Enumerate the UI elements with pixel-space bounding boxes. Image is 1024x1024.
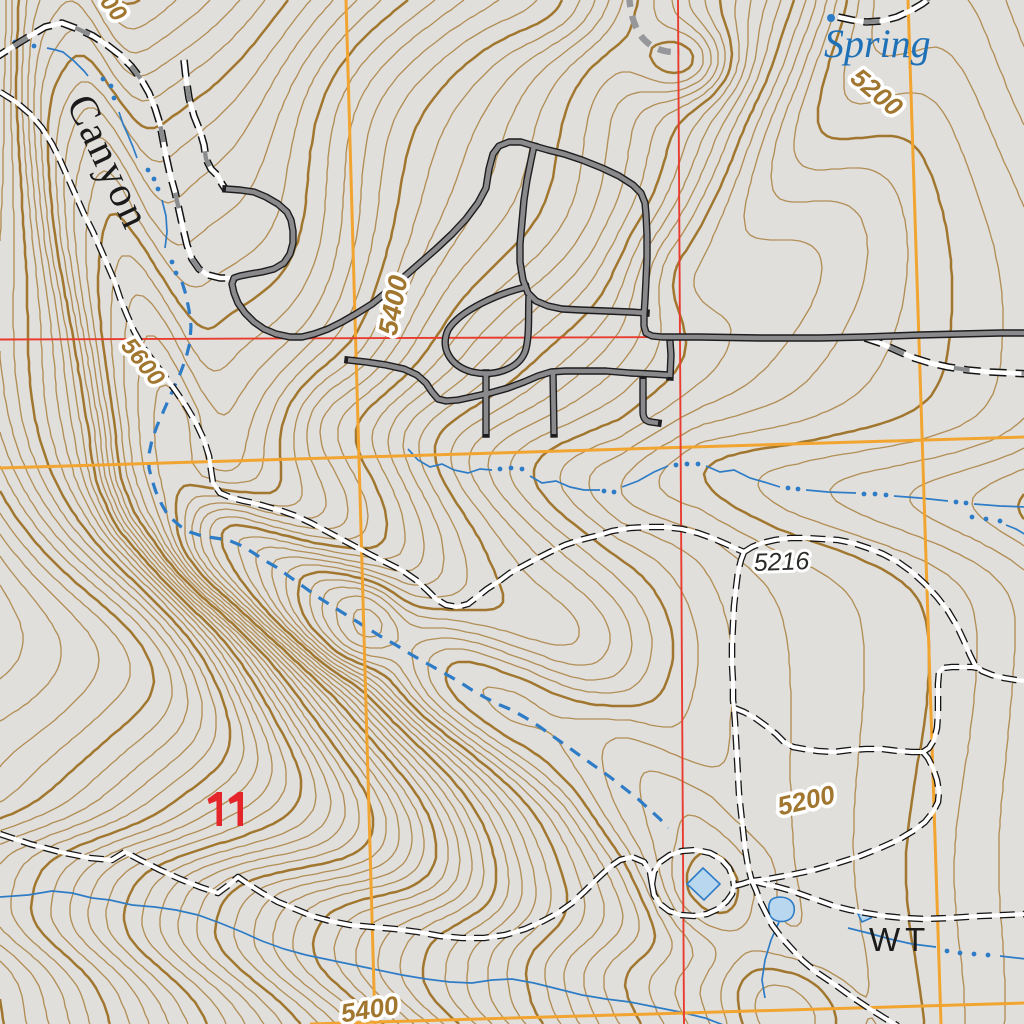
svg-text:Spring: Spring bbox=[824, 21, 931, 66]
svg-text:5216: 5216 bbox=[753, 547, 810, 577]
svg-text:WT: WT bbox=[869, 921, 930, 958]
